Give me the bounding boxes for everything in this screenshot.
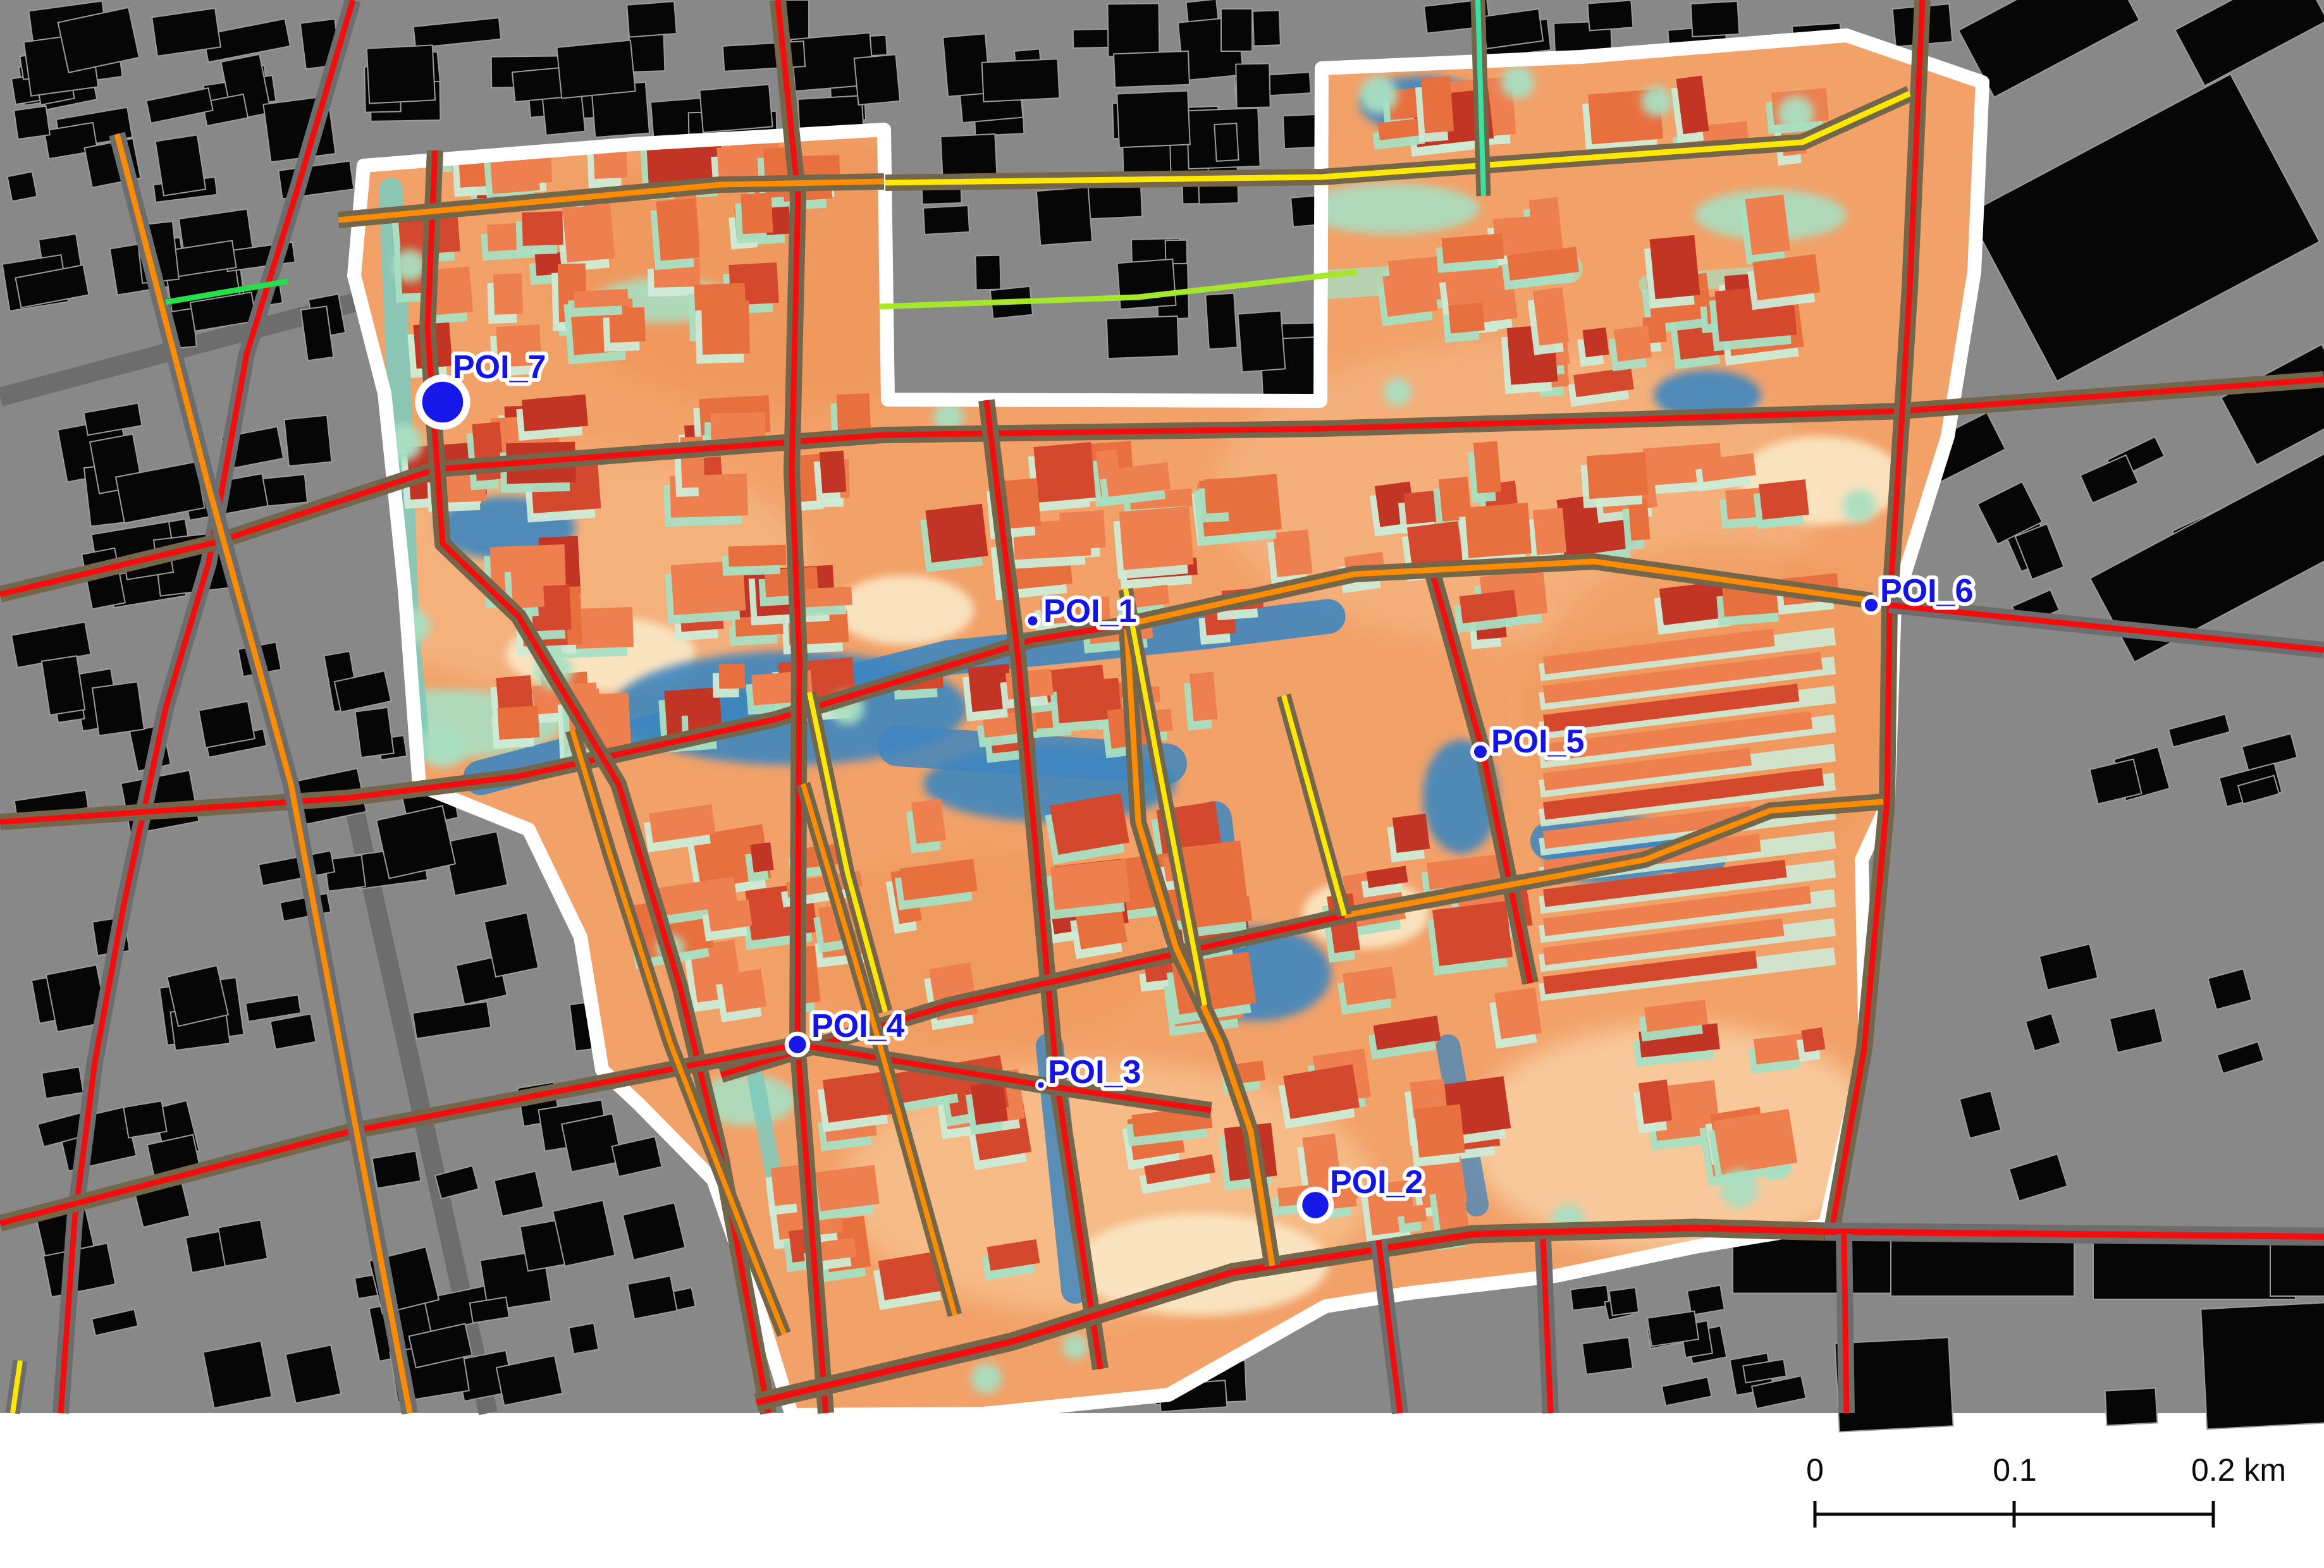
poi-label-POI_3: POI_3 — [1048, 1054, 1141, 1091]
road-red-spur3 — [1844, 1234, 1847, 1413]
scalebar-label: 0.2 km — [2191, 1452, 2286, 1488]
map-export-page: POI_1POI_2POI_3POI_4POI_5POI_6POI_700.10… — [0, 0, 2324, 1568]
poi-label-POI_5: POI_5 — [1491, 723, 1584, 760]
scalebar — [1815, 1501, 2213, 1528]
poi-label-POI_1: POI_1 — [1043, 593, 1136, 630]
scalebar-label: 0 — [1806, 1452, 1824, 1488]
poi-marker-POI_6[interactable] — [1863, 597, 1879, 613]
poi-marker-POI_2[interactable] — [1300, 1189, 1331, 1221]
poi-marker-POI_3[interactable] — [1036, 1081, 1045, 1089]
poi-label-POI_4: POI_4 — [811, 1008, 904, 1044]
poi-label-POI_2: POI_2 — [1330, 1164, 1423, 1201]
poi-marker-POI_5[interactable] — [1472, 744, 1489, 760]
poi-marker-POI_1[interactable] — [1026, 615, 1039, 627]
scalebar-label: 0.1 — [1993, 1452, 2037, 1488]
poi-label-POI_7: POI_7 — [453, 349, 546, 386]
poi-marker-POI_4[interactable] — [787, 1034, 808, 1055]
poi-label-POI_6: POI_6 — [1880, 573, 1973, 609]
